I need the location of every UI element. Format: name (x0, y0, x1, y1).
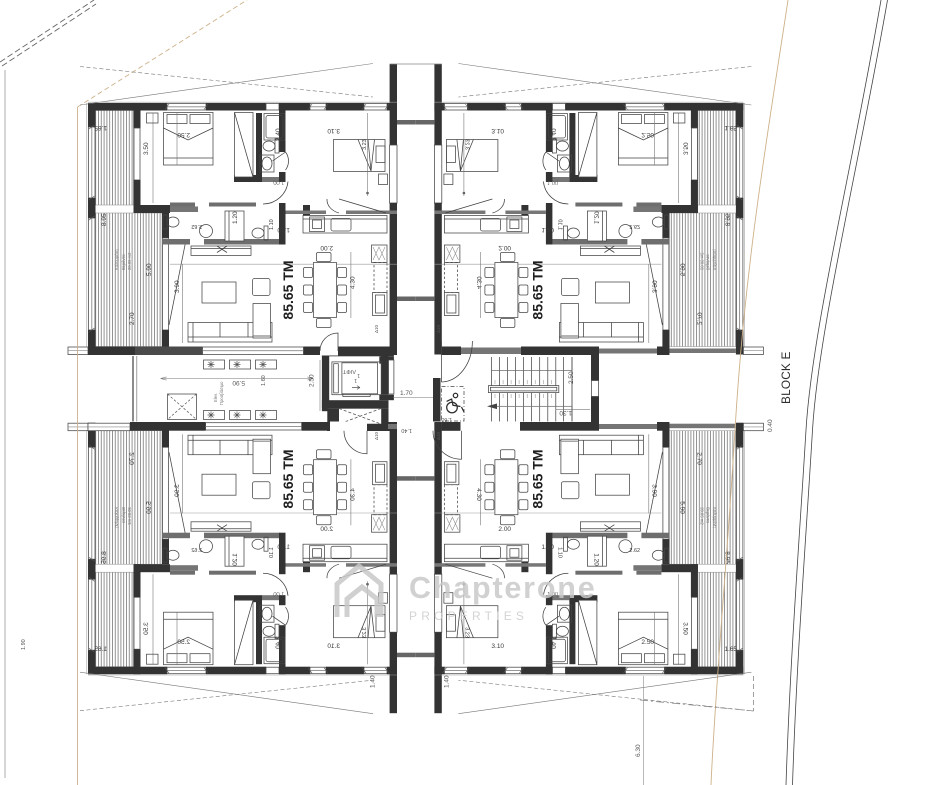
svg-text:85.65 TM: 85.65 TM (280, 449, 296, 508)
svg-text:0.40: 0.40 (767, 419, 774, 432)
svg-text:1.60: 1.60 (441, 416, 452, 422)
svg-text:1: 1 (357, 372, 360, 378)
svg-text:1.90: 1.90 (21, 639, 27, 650)
svg-text:6.30: 6.30 (635, 744, 642, 757)
svg-text:85.65 TM: 85.65 TM (530, 449, 546, 508)
svg-text:2.50: 2.50 (568, 371, 575, 384)
svg-text:1.40: 1.40 (401, 427, 412, 433)
svg-text:85.65 TM: 85.65 TM (530, 260, 546, 319)
svg-text:2.50: 2.50 (309, 374, 316, 387)
svg-text:1.40: 1.40 (370, 675, 377, 688)
svg-text:1.60: 1.60 (261, 375, 267, 386)
svg-text:Chapterone: Chapterone (409, 571, 596, 605)
svg-text:Δ10: Δ10 (374, 324, 379, 333)
svg-text:Elev.: Elev. (213, 393, 218, 402)
svg-text:1.30: 1.30 (559, 409, 572, 416)
svg-text:5.90: 5.90 (232, 379, 245, 386)
svg-text:1.70: 1.70 (400, 390, 413, 397)
svg-text:Προσβάσιμο: Προσβάσιμο (219, 381, 224, 405)
svg-text:1.40: 1.40 (444, 675, 451, 688)
svg-text:PROPERTIES: PROPERTIES (409, 609, 528, 623)
svg-text:ΛΙΦΤ: ΛΙΦΤ (342, 368, 356, 374)
svg-text:Δ10: Δ10 (374, 431, 379, 440)
svg-text:Δ10: Δ10 (436, 324, 441, 333)
svg-text:1: 1 (354, 377, 357, 383)
svg-text:BLOCK E: BLOCK E (779, 351, 793, 404)
svg-text:85.65 TM: 85.65 TM (280, 260, 296, 319)
svg-text:Δ10: Δ10 (436, 431, 441, 440)
